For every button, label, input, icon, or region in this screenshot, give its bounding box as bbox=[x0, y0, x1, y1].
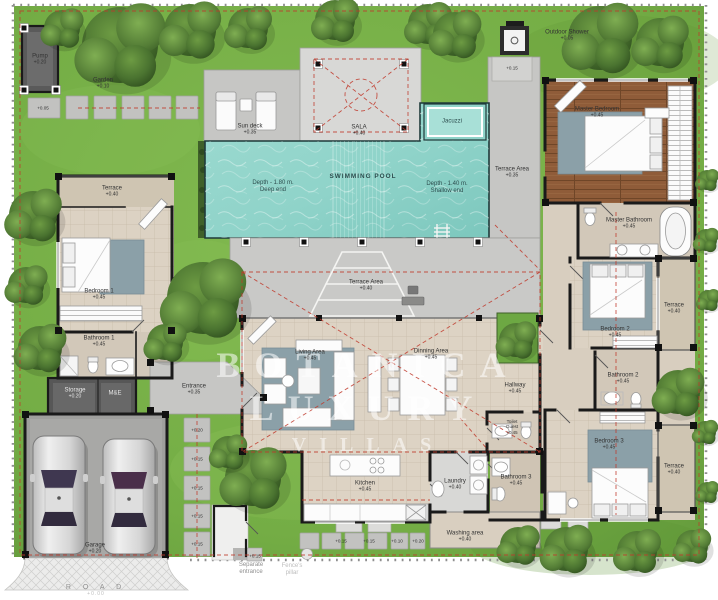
villa-floor-plan: BOTANICA LUXURY VILLAS Pump+0.20 Garden+… bbox=[0, 0, 718, 600]
driveway bbox=[5, 558, 188, 590]
center-terrace bbox=[230, 238, 540, 318]
shower-pad bbox=[492, 57, 532, 81]
outdoor-shower-unit bbox=[500, 21, 529, 55]
site-plan-drawing bbox=[0, 0, 718, 600]
pool-terrace-strip bbox=[488, 57, 540, 238]
